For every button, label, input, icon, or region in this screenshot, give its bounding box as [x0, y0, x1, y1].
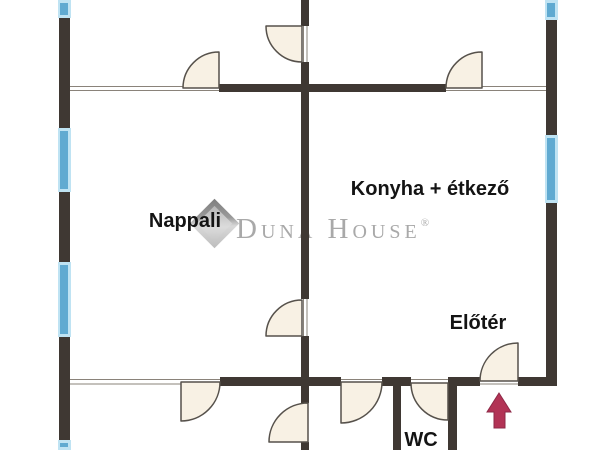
room-labels: Nappali Konyha + étkező Előtér WC: [0, 0, 600, 450]
room-label-konyha-etkezo: Konyha + étkező: [351, 178, 509, 201]
room-label-eloter: Előtér: [450, 312, 507, 335]
floorplan-image: Duna House® Nappali Konyha + étkező Előt…: [0, 0, 600, 450]
room-label-wc: WC: [404, 429, 437, 450]
room-label-nappali: Nappali: [149, 210, 221, 233]
